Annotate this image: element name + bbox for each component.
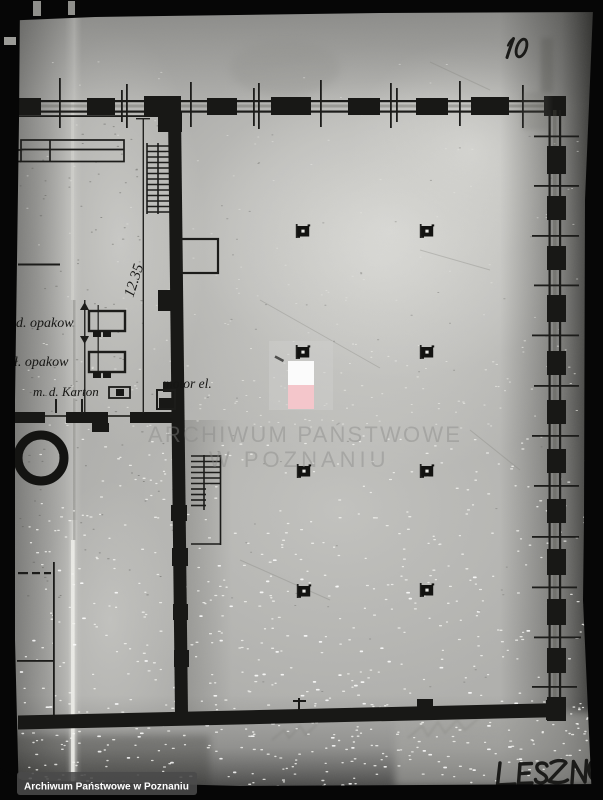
svg-text:motor el.: motor el. (163, 376, 212, 391)
svg-text:ARCHIWUM PAŃSTWOWE: ARCHIWUM PAŃSTWOWE (148, 422, 462, 447)
svg-text:d. opakow: d. opakow (16, 316, 74, 331)
svg-text:m. d. Karton: m. d. Karton (33, 384, 99, 399)
svg-text:Archiwum Państwowe w Poznaniu: Archiwum Państwowe w Poznaniu (24, 782, 189, 793)
svg-text:ł. opakow: ł. opakow (14, 355, 69, 370)
svg-text:W POZNANIU: W POZNANIU (209, 447, 390, 472)
